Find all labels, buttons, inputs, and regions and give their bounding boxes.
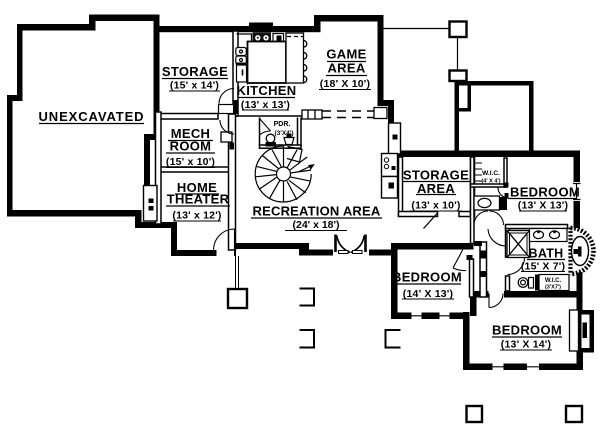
svg-text:(13' x 12'): (13' x 12') (172, 210, 221, 222)
svg-text:PDR.: PDR. (274, 121, 291, 128)
svg-text:AREA: AREA (327, 61, 365, 76)
svg-text:BEDROOM: BEDROOM (510, 185, 580, 200)
svg-text:(15' X 7'): (15' X 7') (521, 261, 565, 273)
svg-text:(15' x 14'): (15' x 14') (170, 80, 219, 92)
svg-text:RECREATION AREA: RECREATION AREA (253, 204, 381, 219)
svg-text:W.I.C.: W.I.C. (545, 278, 562, 284)
svg-text:ROOM: ROOM (170, 139, 212, 154)
svg-text:(13' x 13'): (13' x 13') (241, 99, 290, 111)
svg-text:(24' x 18'): (24' x 18') (292, 219, 339, 231)
svg-text:BEDROOM: BEDROOM (392, 270, 462, 285)
svg-text:(13' x 10'): (13' x 10') (411, 200, 460, 212)
svg-text:(14' X 13'): (14' X 13') (403, 288, 453, 300)
svg-text:(15' x 10'): (15' x 10') (166, 156, 215, 168)
svg-text:(3'X4'): (3'X4') (275, 130, 294, 137)
svg-text:(18' X 10'): (18' X 10') (320, 78, 370, 90)
svg-text:AREA: AREA (417, 181, 455, 196)
svg-text:(4' X 4'): (4' X 4') (481, 179, 500, 185)
svg-text:KITCHEN: KITCHEN (237, 83, 297, 98)
svg-text:UNEXCAVATED: UNEXCAVATED (39, 109, 145, 124)
svg-text:THEATER: THEATER (167, 192, 230, 207)
svg-text:STORAGE: STORAGE (162, 64, 228, 79)
svg-text:W.I.C.: W.I.C. (482, 170, 500, 177)
svg-text:GAME: GAME (326, 47, 366, 62)
svg-text:BEDROOM: BEDROOM (492, 323, 562, 338)
svg-text:BATH: BATH (529, 247, 564, 261)
svg-text:(13' X 13'): (13' X 13') (518, 200, 568, 212)
svg-text:(13' X 14'): (13' X 14') (501, 339, 551, 351)
svg-text:(3'X7'): (3'X7') (545, 285, 561, 291)
